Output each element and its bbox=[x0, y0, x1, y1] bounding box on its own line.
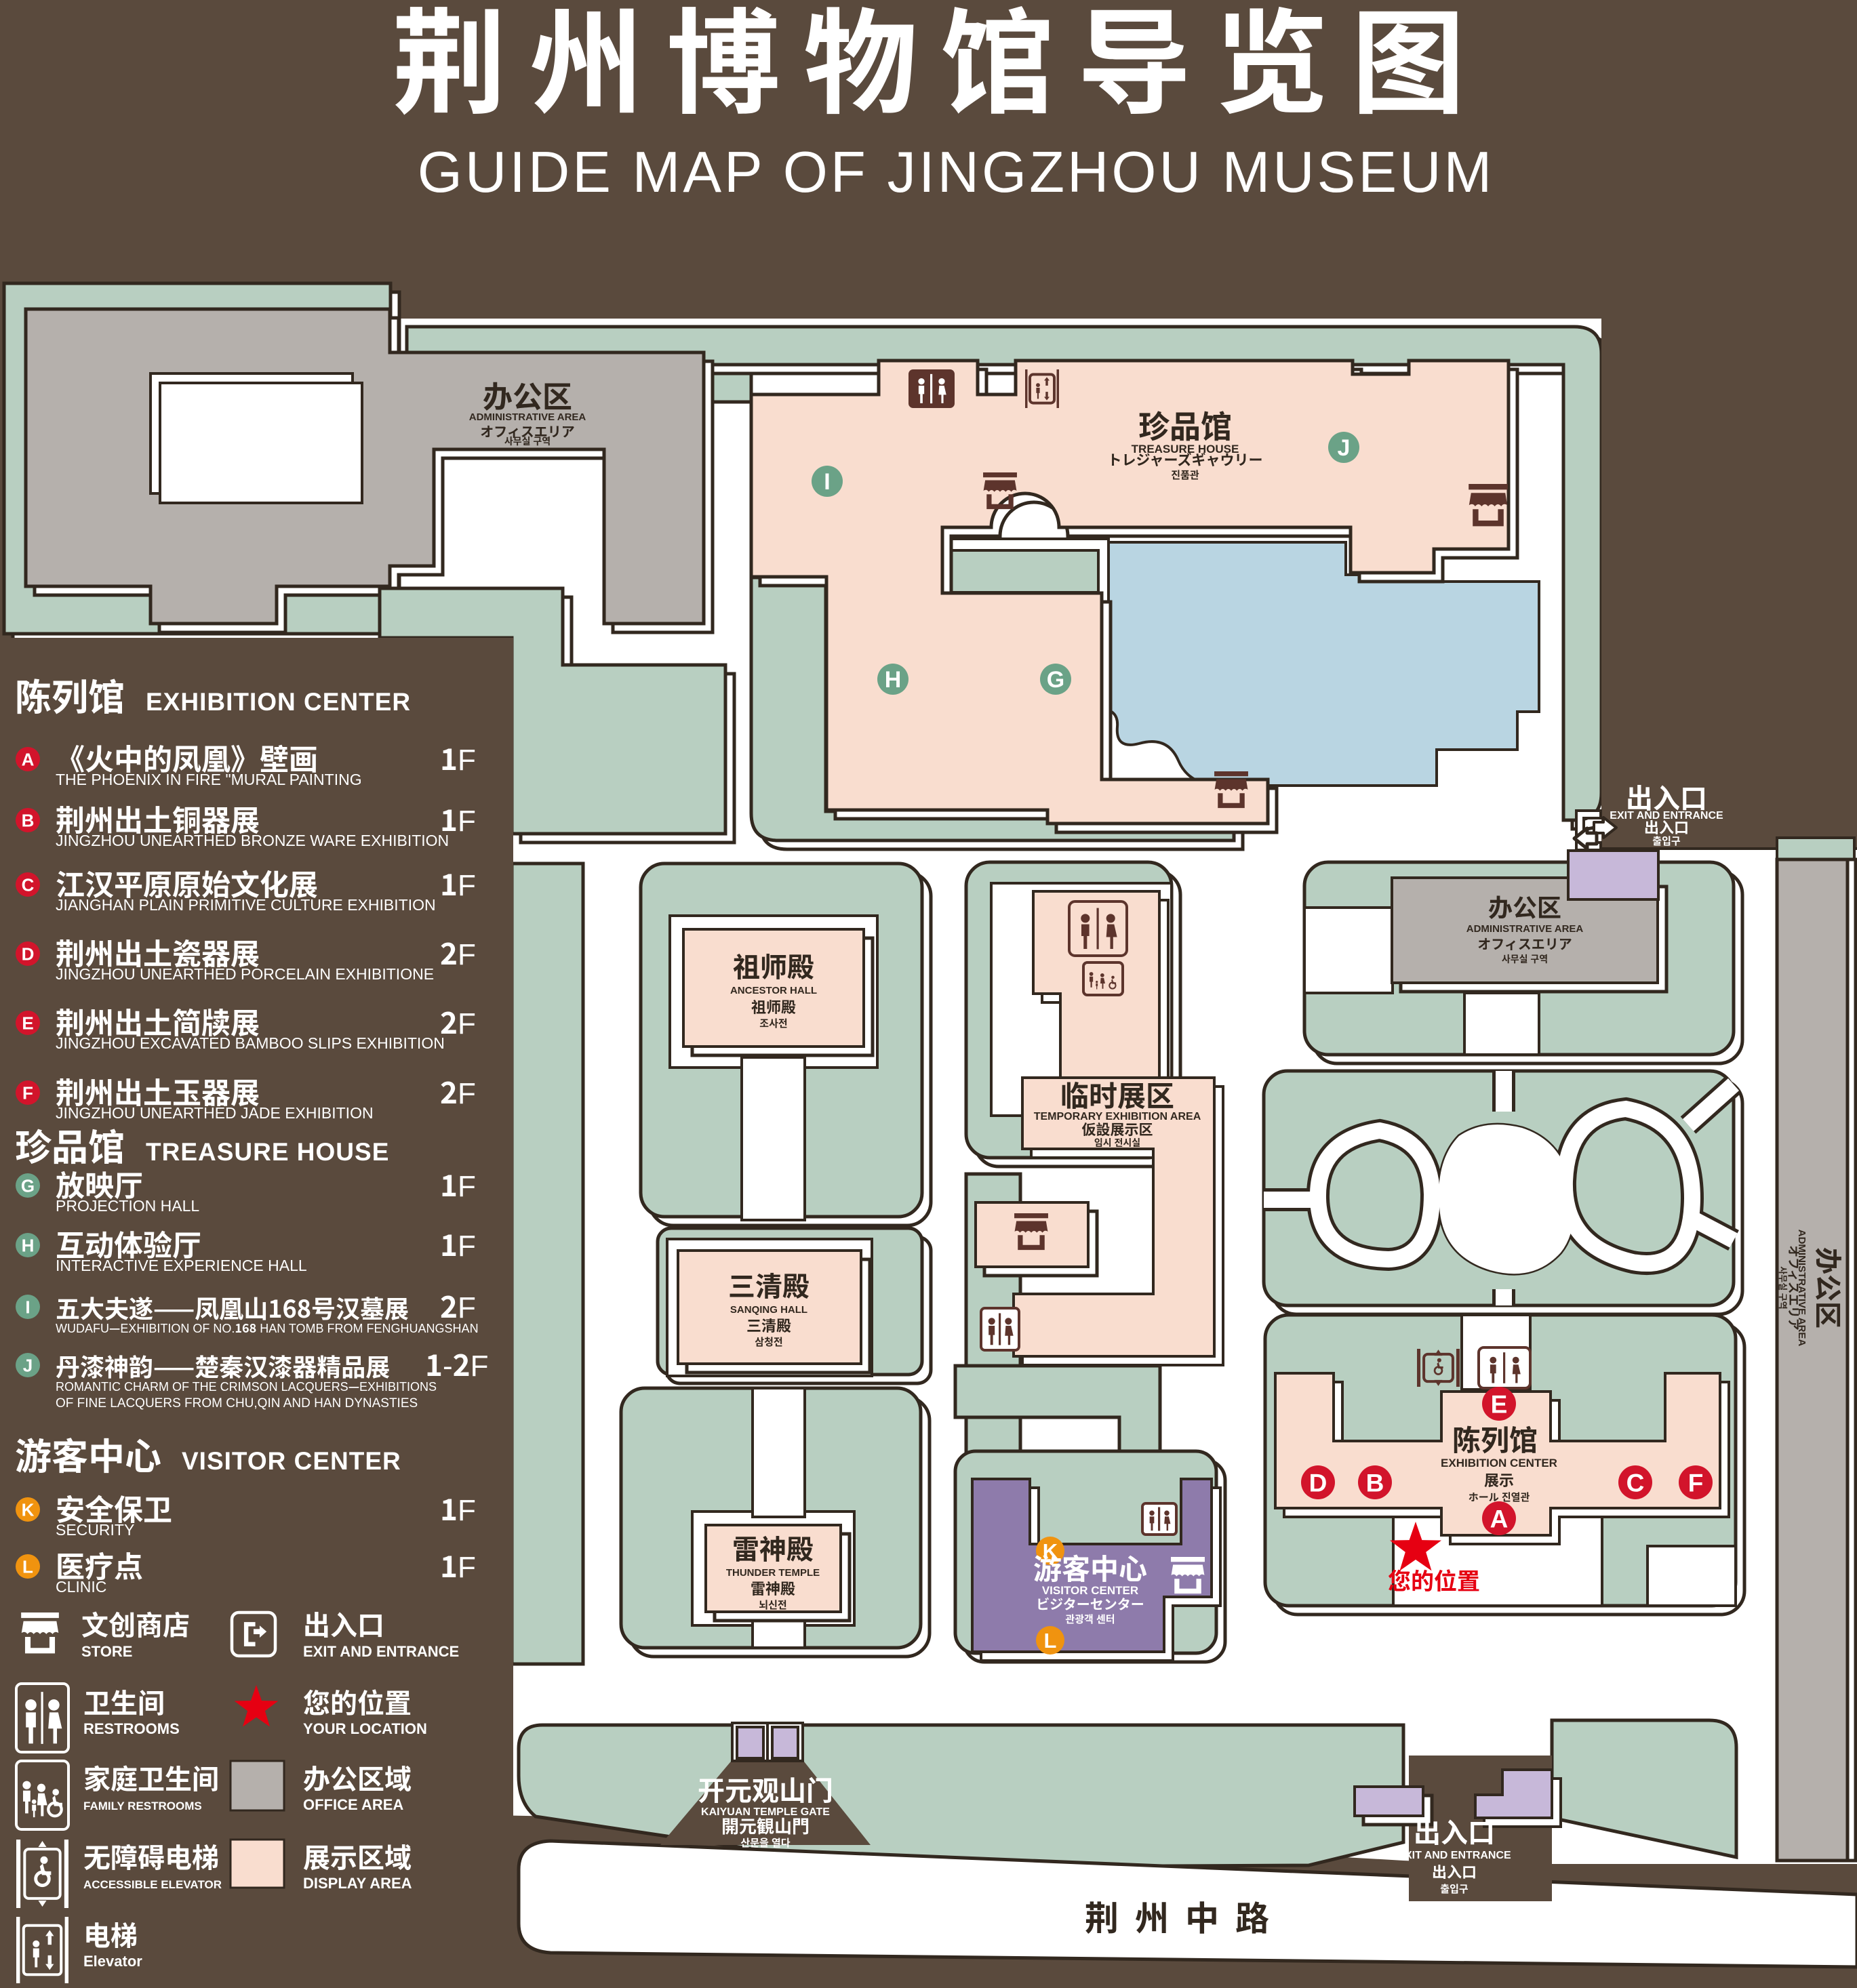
svg-text:1F: 1F bbox=[440, 1221, 476, 1265]
svg-text:DISPLAY AREA: DISPLAY AREA bbox=[303, 1871, 412, 1893]
svg-text:文创商店: 文创商店 bbox=[81, 1604, 190, 1643]
svg-text:C: C bbox=[22, 871, 35, 896]
svg-text:RESTROOMS: RESTROOMS bbox=[83, 1717, 180, 1739]
svg-text:ACCESSIBLE ELEVATOR: ACCESSIBLE ELEVATOR bbox=[83, 1875, 222, 1892]
svg-text:1F: 1F bbox=[440, 735, 476, 779]
svg-text:H: H bbox=[885, 661, 902, 694]
svg-text:CLINIC: CLINIC bbox=[56, 1574, 106, 1597]
svg-text:D: D bbox=[22, 940, 35, 965]
svg-text:STORE: STORE bbox=[81, 1640, 132, 1661]
svg-text:JINGZHOU UNEARTHED BRONZE WARE: JINGZHOU UNEARTHED BRONZE WARE EXHIBITIO… bbox=[56, 828, 449, 851]
svg-text:진품관: 진품관 bbox=[1171, 468, 1199, 482]
svg-text:OFFICE AREA: OFFICE AREA bbox=[303, 1793, 403, 1814]
svg-text:TREASURE HOUSE: TREASURE HOUSE bbox=[146, 1131, 389, 1168]
svg-text:办公区域: 办公区域 bbox=[303, 1758, 412, 1797]
svg-text:1F: 1F bbox=[440, 796, 476, 840]
svg-text:E: E bbox=[1491, 1383, 1508, 1420]
svg-text:Elevator: Elevator bbox=[83, 1949, 142, 1971]
svg-text:您的位置: 您的位置 bbox=[303, 1682, 412, 1721]
svg-text:2F: 2F bbox=[440, 1283, 476, 1326]
svg-text:관광객 센터: 관광객 센터 bbox=[1065, 1612, 1115, 1626]
svg-text:办公区: 办公区 bbox=[1488, 889, 1561, 924]
svg-text:卫生间: 卫生间 bbox=[83, 1682, 165, 1721]
svg-text:EXIT AND ENTRANCE: EXIT AND ENTRANCE bbox=[1397, 1846, 1511, 1862]
svg-text:雷神殿: 雷神殿 bbox=[732, 1528, 814, 1567]
svg-text:F: F bbox=[1688, 1462, 1704, 1499]
svg-text:INTERACTIVE EXPERIENCE HALL: INTERACTIVE EXPERIENCE HALL bbox=[56, 1253, 307, 1276]
svg-text:H: H bbox=[22, 1232, 35, 1257]
svg-text:D: D bbox=[1309, 1462, 1327, 1499]
svg-text:PROJECTION HALL: PROJECTION HALL bbox=[56, 1193, 199, 1216]
svg-text:办公区: 办公区 bbox=[1810, 1247, 1850, 1328]
svg-text:A: A bbox=[22, 746, 35, 771]
svg-text:トレジャーズギャウリー: トレジャーズギャウリー bbox=[1108, 449, 1263, 470]
svg-text:EXIT AND ENTRANCE: EXIT AND ENTRANCE bbox=[303, 1640, 459, 1661]
svg-text:G: G bbox=[1047, 661, 1064, 694]
svg-text:F: F bbox=[22, 1079, 33, 1104]
svg-text:出入口: 出入口 bbox=[1414, 1811, 1495, 1850]
svg-text:사무실 구역: 사무실 구역 bbox=[1502, 952, 1548, 966]
svg-text:J: J bbox=[23, 1352, 33, 1377]
svg-text:游客中心: 游客中心 bbox=[15, 1427, 161, 1480]
svg-text:JINGZHOU UNEARTHED PORCELAIN E: JINGZHOU UNEARTHED PORCELAIN EXHIBITIONE bbox=[56, 961, 434, 984]
svg-text:ANCESTOR HALL: ANCESTOR HALL bbox=[730, 983, 817, 997]
svg-text:임시 전시실: 임시 전시실 bbox=[1094, 1136, 1140, 1150]
svg-text:1F: 1F bbox=[440, 1162, 476, 1205]
svg-text:B: B bbox=[22, 807, 35, 832]
svg-text:VISITOR CENTER: VISITOR CENTER bbox=[182, 1440, 401, 1477]
svg-text:출입구: 출입구 bbox=[1440, 1882, 1469, 1896]
svg-text:展示: 展示 bbox=[1484, 1469, 1514, 1490]
svg-text:J: J bbox=[1338, 429, 1351, 462]
svg-text:開元観山門: 開元観山門 bbox=[721, 1813, 810, 1838]
svg-text:您的位置: 您的位置 bbox=[1388, 1563, 1480, 1596]
svg-text:展示区域: 展示区域 bbox=[303, 1836, 412, 1875]
svg-text:荆州博物馆导览图: 荆州博物馆导览图 bbox=[393, 0, 1488, 137]
svg-text:YOUR LOCATION: YOUR LOCATION bbox=[303, 1717, 427, 1739]
svg-text:I: I bbox=[25, 1293, 30, 1318]
svg-text:2F: 2F bbox=[440, 1069, 476, 1112]
svg-text:三清殿: 三清殿 bbox=[746, 1314, 791, 1336]
svg-text:A: A bbox=[1490, 1498, 1509, 1535]
svg-text:THE PHOENIX IN FIRE "MURAL PAI: THE PHOENIX IN FIRE "MURAL PAINTING bbox=[56, 767, 362, 790]
svg-text:无障碍电梯: 无障碍电梯 bbox=[83, 1836, 219, 1875]
svg-text:家庭卫生间: 家庭卫生间 bbox=[83, 1758, 219, 1797]
svg-text:荆州中路: 荆州中路 bbox=[1085, 1892, 1285, 1941]
svg-text:OF FINE LACQUERS FROM CHU,QIN: OF FINE LACQUERS FROM CHU,QIN AND HAN DY… bbox=[56, 1393, 418, 1411]
svg-text:三清殿: 三清殿 bbox=[728, 1265, 810, 1304]
svg-text:사무실 구역: 사무실 구역 bbox=[1777, 1266, 1790, 1309]
svg-text:1F: 1F bbox=[440, 1486, 476, 1529]
svg-text:E: E bbox=[22, 1009, 33, 1034]
svg-text:산문을 열다: 산문을 열다 bbox=[740, 1835, 790, 1850]
svg-text:ビジターセンター: ビジターセンター bbox=[1036, 1594, 1144, 1613]
svg-text:삼청전: 삼청전 bbox=[755, 1335, 782, 1349]
svg-text:SECURITY: SECURITY bbox=[56, 1517, 134, 1540]
svg-text:EXHIBITION CENTER: EXHIBITION CENTER bbox=[146, 681, 411, 718]
svg-text:雷神殿: 雷神殿 bbox=[751, 1577, 795, 1599]
svg-text:オフィスエリア: オフィスエリア bbox=[1477, 933, 1572, 953]
svg-text:K: K bbox=[22, 1496, 35, 1521]
svg-text:电梯: 电梯 bbox=[83, 1914, 138, 1953]
svg-text:JIANGHAN PLAIN PRIMITIVE CULTU: JIANGHAN PLAIN PRIMITIVE CULTURE EXHIBIT… bbox=[56, 892, 436, 915]
svg-text:出入口: 出入口 bbox=[1432, 1861, 1477, 1882]
svg-text:G: G bbox=[21, 1172, 35, 1197]
svg-text:1-2F: 1-2F bbox=[425, 1341, 488, 1385]
svg-text:뇌신전: 뇌신전 bbox=[759, 1598, 786, 1612]
svg-text:祖师殿: 祖师殿 bbox=[733, 946, 814, 985]
svg-text:陈列馆: 陈列馆 bbox=[15, 668, 125, 721]
svg-text:祖师殿: 祖师殿 bbox=[751, 996, 796, 1017]
svg-text:出入口: 出入口 bbox=[303, 1604, 384, 1643]
svg-text:B: B bbox=[1366, 1462, 1384, 1499]
svg-text:WUDAFU—EXHIBITION OF NO.168 HA: WUDAFU—EXHIBITION OF NO.168 HAN TOMB FRO… bbox=[56, 1319, 479, 1337]
svg-text:1F: 1F bbox=[440, 861, 476, 904]
svg-text:GUIDE MAP OF JINGZHOU MUSEUM: GUIDE MAP OF JINGZHOU MUSEUM bbox=[418, 125, 1495, 209]
svg-text:L: L bbox=[1044, 1623, 1057, 1654]
svg-text:사무실 구역: 사무실 구역 bbox=[504, 434, 551, 448]
svg-text:L: L bbox=[22, 1553, 33, 1578]
svg-text:2F: 2F bbox=[440, 930, 476, 973]
svg-text:JINGZHOU EXCAVATED BAMBOO SLIP: JINGZHOU EXCAVATED BAMBOO SLIPS EXHIBITI… bbox=[56, 1030, 445, 1053]
svg-text:출입구: 출입구 bbox=[1652, 834, 1681, 848]
svg-text:I: I bbox=[824, 463, 830, 496]
svg-text:EXHIBITION CENTER: EXHIBITION CENTER bbox=[1441, 1453, 1557, 1470]
svg-text:1F: 1F bbox=[440, 1543, 476, 1586]
svg-text:조사전: 조사전 bbox=[759, 1016, 787, 1030]
svg-text:2F: 2F bbox=[440, 999, 476, 1042]
svg-text:C: C bbox=[1626, 1462, 1645, 1499]
svg-text:FAMILY RESTROOMS: FAMILY RESTROOMS bbox=[83, 1796, 202, 1813]
